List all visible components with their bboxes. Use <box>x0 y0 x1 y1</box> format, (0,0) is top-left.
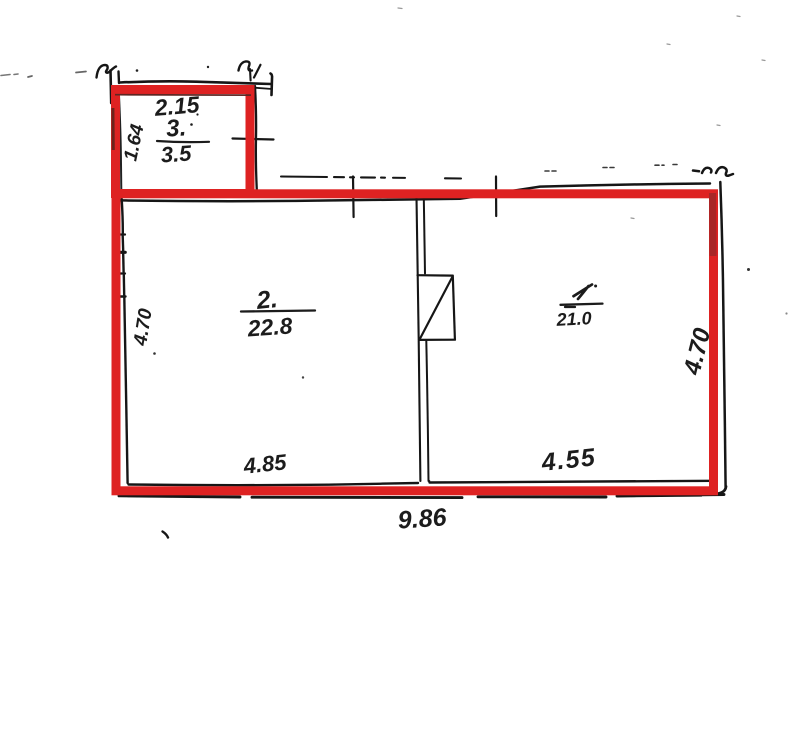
svg-text:3.: 3. <box>165 114 187 142</box>
svg-text:3.5: 3.5 <box>160 140 193 167</box>
svg-text:9.86: 9.86 <box>397 503 449 534</box>
svg-text:21.0: 21.0 <box>555 308 592 330</box>
svg-text:4.85: 4.85 <box>241 449 288 479</box>
svg-text:4.55: 4.55 <box>539 443 597 477</box>
svg-text:1.64: 1.64 <box>120 122 148 163</box>
svg-text:22.8: 22.8 <box>246 312 294 341</box>
svg-text:4.70: 4.70 <box>130 307 157 348</box>
